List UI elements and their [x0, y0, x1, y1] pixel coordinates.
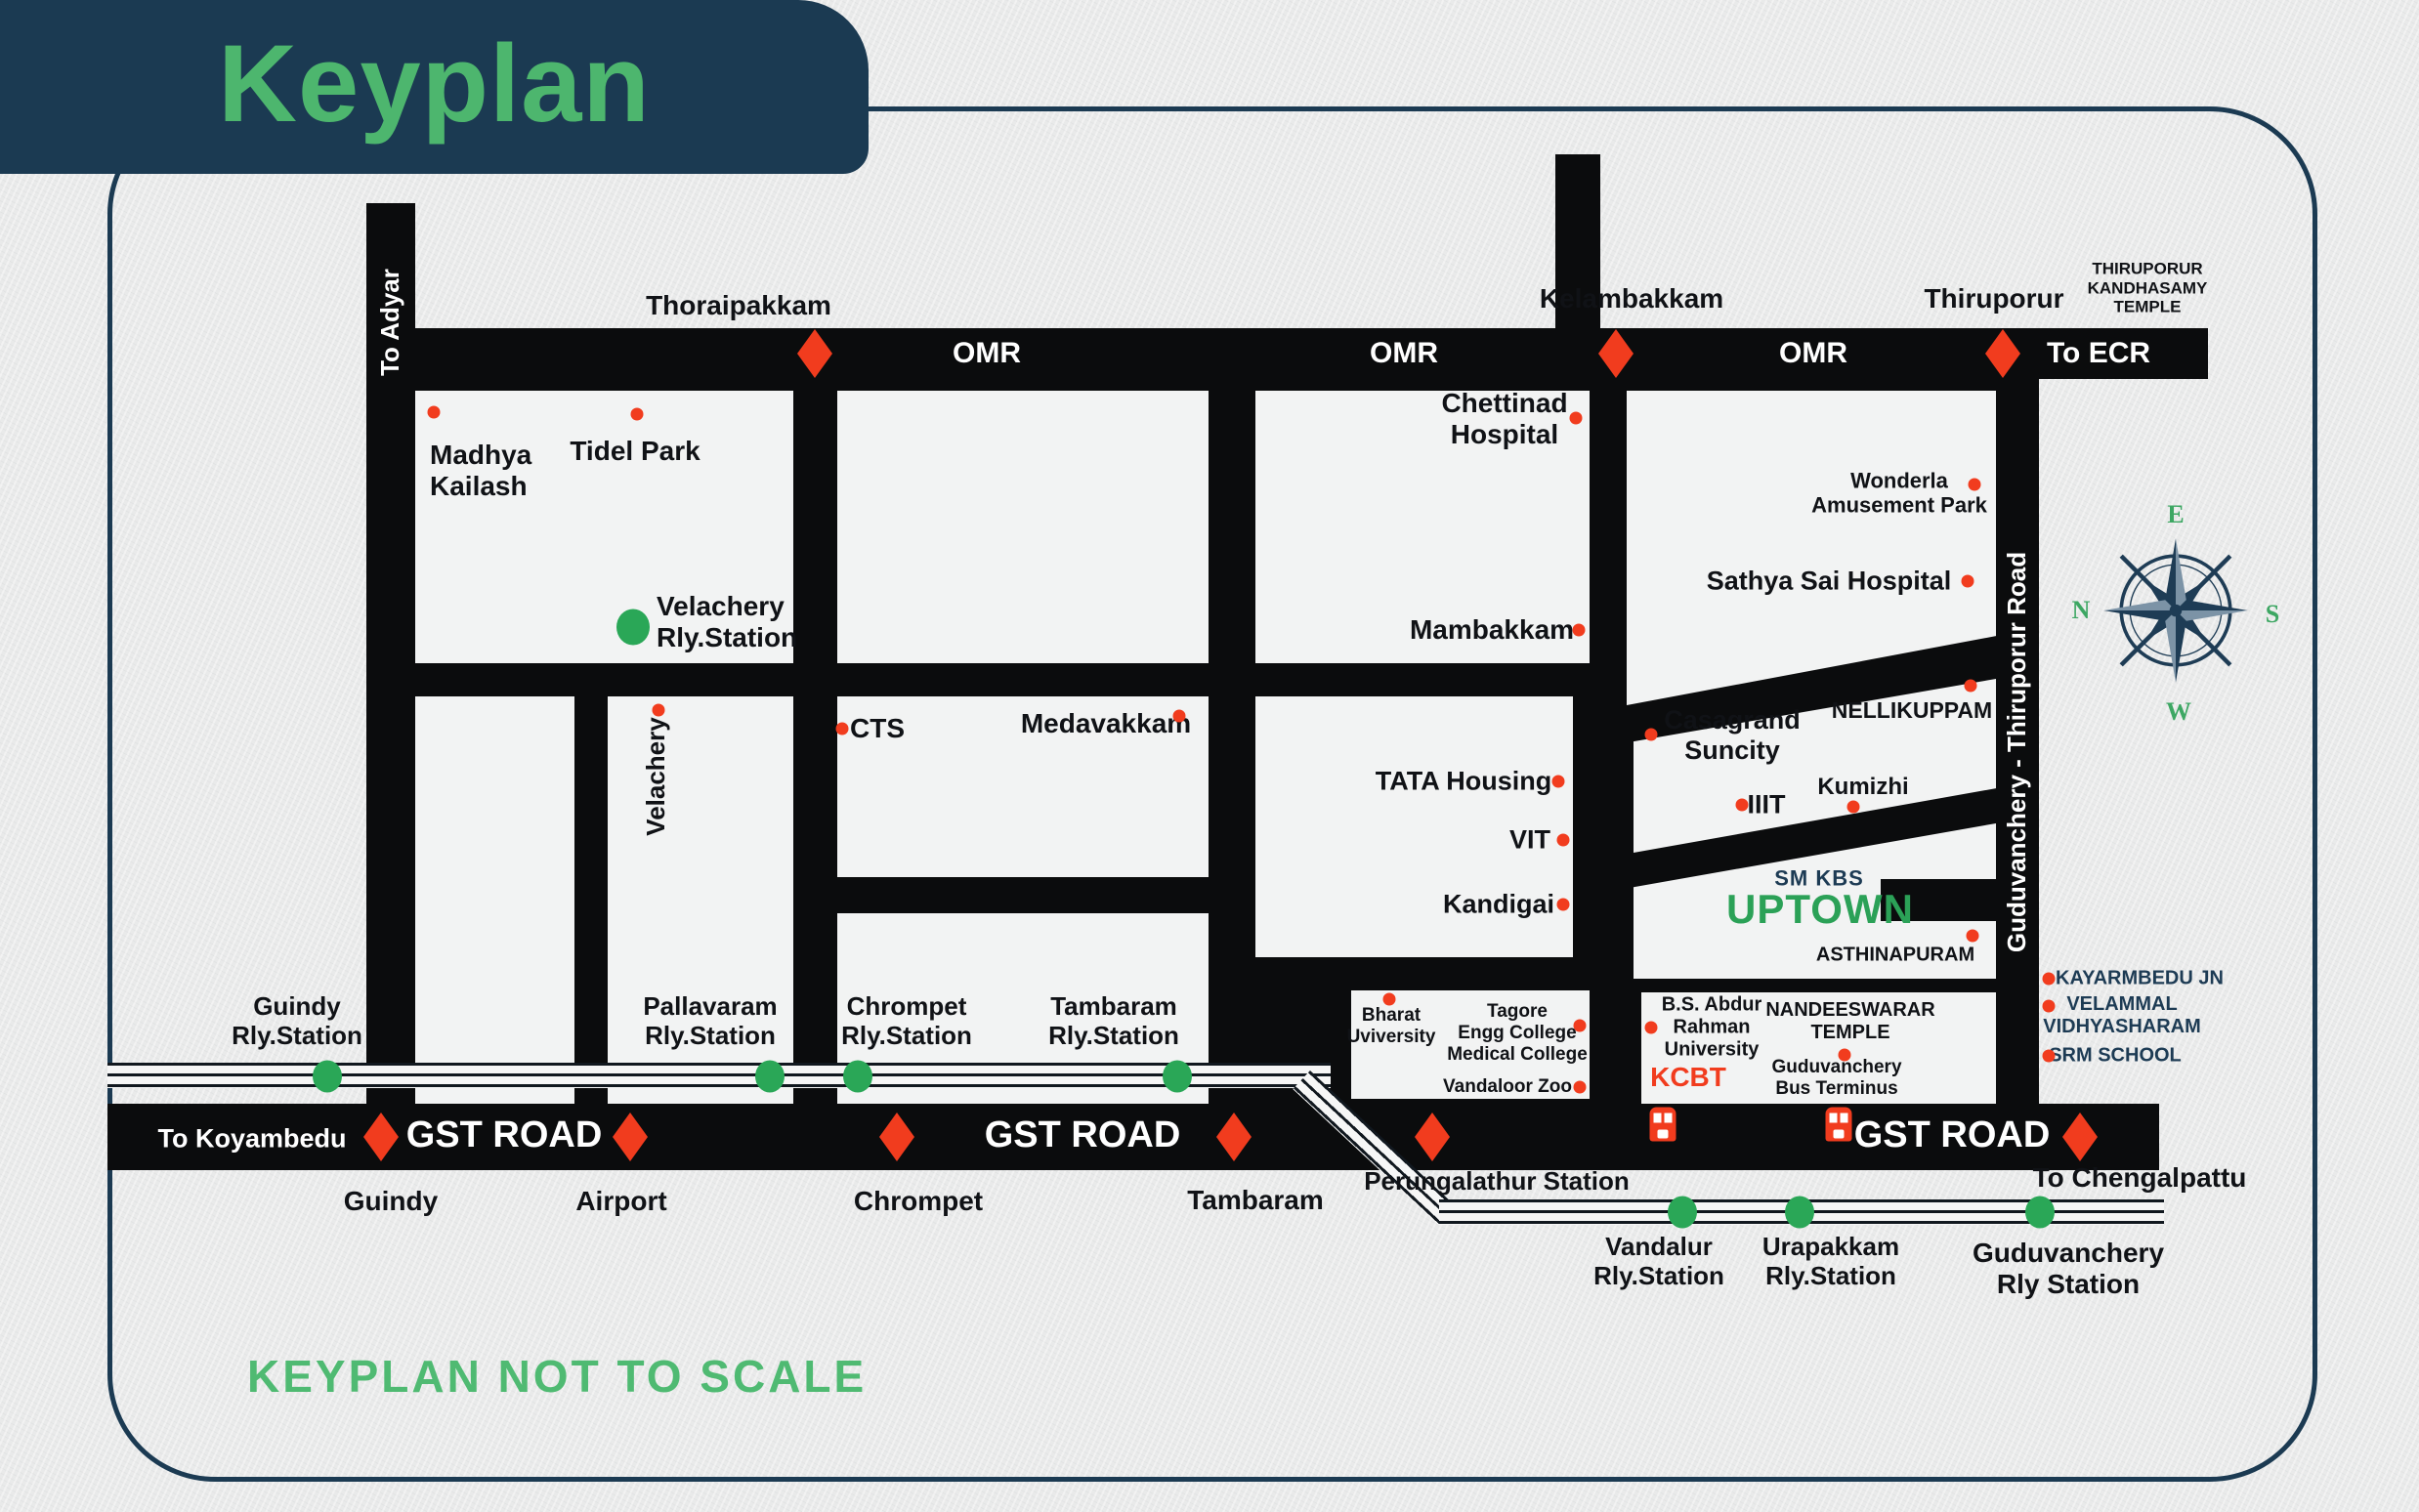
label-b-s-abdur-rahman-university: B.S. Abdur Rahman University: [1662, 994, 1762, 1062]
label-to-chengalpattu: To Chengalpattu: [2033, 1162, 2247, 1194]
red-dot-tagore-college: [1574, 1020, 1587, 1032]
label-bharat-uviversity: Bharat Uviversity: [1347, 1005, 1436, 1048]
block-left-strip: [415, 696, 574, 1104]
station-dot-guduvanchery-rly-station: [2025, 1197, 2055, 1229]
label-tambaram: Tambaram: [1187, 1185, 1324, 1216]
label-to-adyar: To Adyar: [376, 269, 405, 376]
label-urapakkam-rly-station: Urapakkam Rly.Station: [1762, 1233, 1899, 1291]
compass-rose: [2088, 523, 2264, 698]
label-medavakkam: Medavakkam: [1021, 708, 1191, 739]
label-cts: CTS: [850, 713, 905, 744]
label-gst-road: GST ROAD: [406, 1114, 603, 1157]
label-chrompet-rly-station: Chrompet Rly.Station: [841, 992, 972, 1051]
red-dot-medavakkam: [1173, 710, 1186, 723]
red-dot-kumizhi: [1847, 801, 1860, 814]
label-guindy-rly-station: Guindy Rly.Station: [232, 992, 362, 1051]
label-velammal-vidhyasharam: VELAMMAL VIDHYASHARAM: [2043, 993, 2201, 1038]
red-dot-kandigai: [1557, 899, 1570, 911]
label-to-ecr: To ECR: [2047, 337, 2150, 371]
compass-letter-e: E: [2167, 500, 2184, 529]
label-vandalur-rly-station: Vandalur Rly.Station: [1593, 1233, 1724, 1291]
block-empty-omr: [837, 391, 1209, 663]
label-chettinad-hospital: Chettinad Hospital: [1441, 388, 1567, 450]
label-omr: OMR: [1779, 337, 1847, 371]
red-dot-srm-school: [2043, 1050, 2056, 1063]
bus-icon-kcbt-bus-stop: [1650, 1108, 1676, 1142]
label-mambakkam: Mambakkam: [1410, 614, 1574, 646]
road-omr: [366, 328, 2208, 379]
compass-letter-w: W: [2166, 697, 2191, 727]
label-guduvanchery-thiruporur-road: Guduvanchery - Thiruporur Road: [2003, 552, 2032, 952]
label-gst-road: GST ROAD: [985, 1114, 1181, 1157]
station-dot-vandalur-rly-station: [1668, 1197, 1697, 1229]
red-dot-vandaloor-zoo: [1574, 1081, 1587, 1094]
label-kayarmbedu-jn: KAYARMBEDU JN: [2056, 968, 2224, 990]
label-gst-road: GST ROAD: [1854, 1114, 2051, 1157]
page-title: Keyplan: [218, 21, 651, 154]
label-airport: Airport: [575, 1186, 666, 1217]
station-dot-guindy-rly-station: [313, 1061, 342, 1093]
label-asthinapuram: ASTHINAPURAM: [1816, 945, 1974, 967]
railway-main: [107, 1063, 1331, 1088]
station-dot-velachery-rly-station: [616, 609, 650, 646]
red-dot-tidel-park: [631, 408, 644, 421]
red-dot-bharat-university: [1383, 993, 1396, 1006]
label-thoraipakkam: Thoraipakkam: [646, 290, 831, 321]
red-dot-cts: [836, 723, 849, 735]
bus-window: [1665, 1113, 1673, 1123]
label-vit: VIT: [1509, 824, 1550, 855]
label-guindy: Guindy: [344, 1186, 438, 1217]
bus-window: [1654, 1113, 1662, 1123]
label-iiit: IIIT: [1748, 789, 1786, 819]
label-tidel-park: Tidel Park: [570, 436, 700, 467]
red-dot-tata-housing: [1552, 776, 1565, 788]
station-dot-urapakkam-rly-station: [1785, 1197, 1814, 1229]
label-kumizhi: Kumizhi: [1817, 774, 1908, 801]
red-dot-mambakkam: [1573, 624, 1586, 637]
label-srm-school: SRM SCHOOL: [2049, 1045, 2182, 1068]
label-kcbt: KCBT: [1650, 1062, 1726, 1093]
station-dot-tambaram-rly-station: [1163, 1061, 1192, 1093]
label-madhya-kailash: Madhya Kailash: [430, 440, 531, 502]
station-dot-pallavaram-rly-station: [755, 1061, 785, 1093]
label-uptown: UPTOWN: [1726, 886, 1914, 933]
compass-letter-s: S: [2266, 600, 2279, 629]
red-dot-iiit: [1736, 799, 1749, 812]
red-dot-asthinapuram: [1967, 930, 1979, 943]
label-tagore-engg-college-medical-college: Tagore Engg College Medical College: [1447, 1001, 1588, 1066]
keyplan-map: Keyplan KEYPLAN NOT TO SCALE OMROMROMRTo…: [0, 0, 2419, 1512]
label-tata-housing: TATA Housing: [1376, 766, 1551, 796]
red-dot-kayarmbedu-jn: [2043, 973, 2056, 986]
label-nellikuppam: NELLIKUPPAM: [1832, 697, 1992, 723]
label-casagrand-suncity: Casagrand Suncity: [1664, 705, 1801, 766]
label-vandaloor-zoo: Vandaloor Zoo: [1443, 1076, 1572, 1098]
scale-note: KEYPLAN NOT TO SCALE: [247, 1350, 867, 1403]
label-omr: OMR: [1370, 337, 1438, 371]
red-dot-casagrand-suncity: [1645, 729, 1658, 741]
title-box: Keyplan: [0, 0, 869, 174]
bus-window: [1830, 1113, 1838, 1123]
red-dot-wonderla-amusement-park: [1969, 479, 1981, 491]
label-sathya-sai-hospital: Sathya Sai Hospital: [1707, 566, 1952, 596]
red-dot-madhya-kailash: [428, 406, 441, 419]
red-dot-nandeeswarar-temple: [1839, 1049, 1851, 1062]
label-omr: OMR: [953, 337, 1021, 371]
label-nandeeswarar-temple: NANDEESWARAR TEMPLE: [1765, 999, 1934, 1044]
red-dot-velammal-vidhyasharam: [2043, 1000, 2056, 1013]
label-velachery-rly-station: Velachery Rly.Station: [657, 591, 797, 653]
label-perungalathur-station: Perungalathur Station: [1364, 1167, 1630, 1197]
label-tambaram-rly-station: Tambaram Rly.Station: [1048, 992, 1179, 1051]
label-chrompet: Chrompet: [854, 1186, 983, 1217]
label-velachery: Velachery: [642, 717, 671, 835]
label-thiruporur-kandhasamy-temple: THIRUPORUR KANDHASAMY TEMPLE: [2088, 260, 2208, 317]
compass-letter-n: N: [2072, 596, 2091, 625]
red-dot-chettinad-hospital: [1570, 412, 1583, 425]
station-dot-chrompet-rly-station: [843, 1061, 872, 1093]
red-dot-nellikuppam: [1965, 680, 1977, 693]
label-wonderla-amusement-park: Wonderla Amusement Park: [1811, 469, 1987, 519]
bus-door: [1834, 1130, 1845, 1139]
bus-door: [1658, 1130, 1669, 1139]
label-thiruporur: Thiruporur: [1924, 283, 2063, 315]
label-guduvanchery-bus-terminus: Guduvanchery Bus Terminus: [1771, 1057, 1901, 1100]
bus-window: [1841, 1113, 1848, 1123]
bus-icon-guduvanchery-bus-stop: [1826, 1108, 1852, 1142]
red-dot-bs-abdur-rahman-university: [1645, 1022, 1658, 1034]
red-dot-sathya-sai-hospital: [1962, 575, 1974, 588]
label-guduvanchery-rly-station: Guduvanchery Rly Station: [1973, 1238, 2164, 1300]
label-pallavaram-rly-station: Pallavaram Rly.Station: [643, 992, 777, 1051]
label-kandigai: Kandigai: [1443, 889, 1554, 919]
label-kelambakkam: Kelambakkam: [1540, 283, 1723, 315]
red-dot-vit: [1557, 834, 1570, 847]
red-dot-velachery-road: [653, 704, 665, 717]
label-to-koyambedu: To Koyambedu: [157, 1123, 346, 1154]
